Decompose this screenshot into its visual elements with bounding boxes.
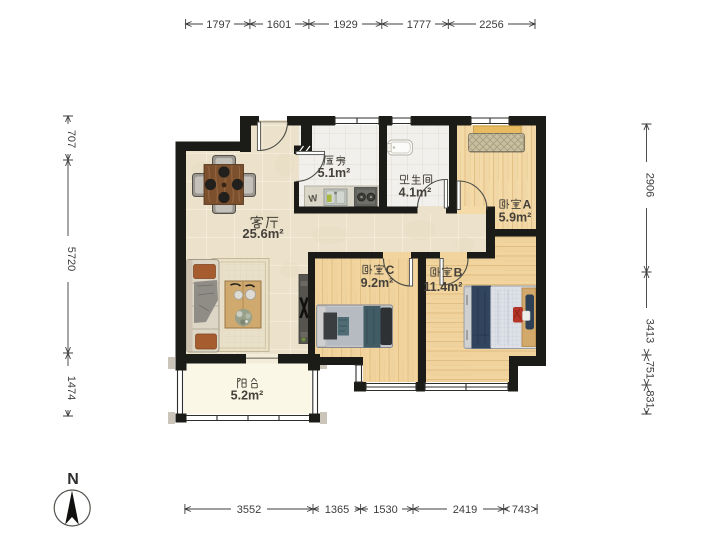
svg-text:25.6m²: 25.6m² — [242, 226, 284, 241]
svg-text:11.4m²: 11.4m² — [424, 280, 463, 294]
svg-text:3413: 3413 — [644, 319, 656, 343]
svg-text:5.9m²: 5.9m² — [499, 211, 532, 225]
svg-text:2256: 2256 — [479, 19, 503, 31]
svg-text:C: C — [386, 263, 395, 277]
svg-text:3552: 3552 — [237, 504, 261, 516]
svg-text:9.2m²: 9.2m² — [361, 276, 394, 290]
svg-text:1365: 1365 — [325, 504, 349, 516]
svg-text:5.1m²: 5.1m² — [318, 166, 351, 180]
svg-text:1601: 1601 — [267, 19, 291, 31]
svg-text:1797: 1797 — [206, 19, 230, 31]
svg-text:B: B — [454, 266, 463, 280]
svg-text:1474: 1474 — [65, 376, 77, 400]
svg-text:4.1m²: 4.1m² — [399, 186, 432, 200]
svg-text:751: 751 — [644, 361, 656, 379]
svg-text:2906: 2906 — [644, 173, 656, 197]
svg-text:831: 831 — [644, 390, 656, 408]
svg-text:1929: 1929 — [333, 19, 357, 31]
svg-text:N: N — [67, 471, 79, 488]
svg-text:5.2m²: 5.2m² — [231, 389, 264, 403]
svg-text:2419: 2419 — [453, 504, 477, 516]
svg-text:5720: 5720 — [65, 247, 77, 271]
svg-text:743: 743 — [512, 504, 530, 516]
svg-text:707: 707 — [65, 130, 77, 148]
svg-text:W: W — [308, 193, 318, 205]
svg-text:1777: 1777 — [407, 19, 431, 31]
svg-text:A: A — [523, 198, 532, 212]
svg-text:1530: 1530 — [373, 504, 397, 516]
